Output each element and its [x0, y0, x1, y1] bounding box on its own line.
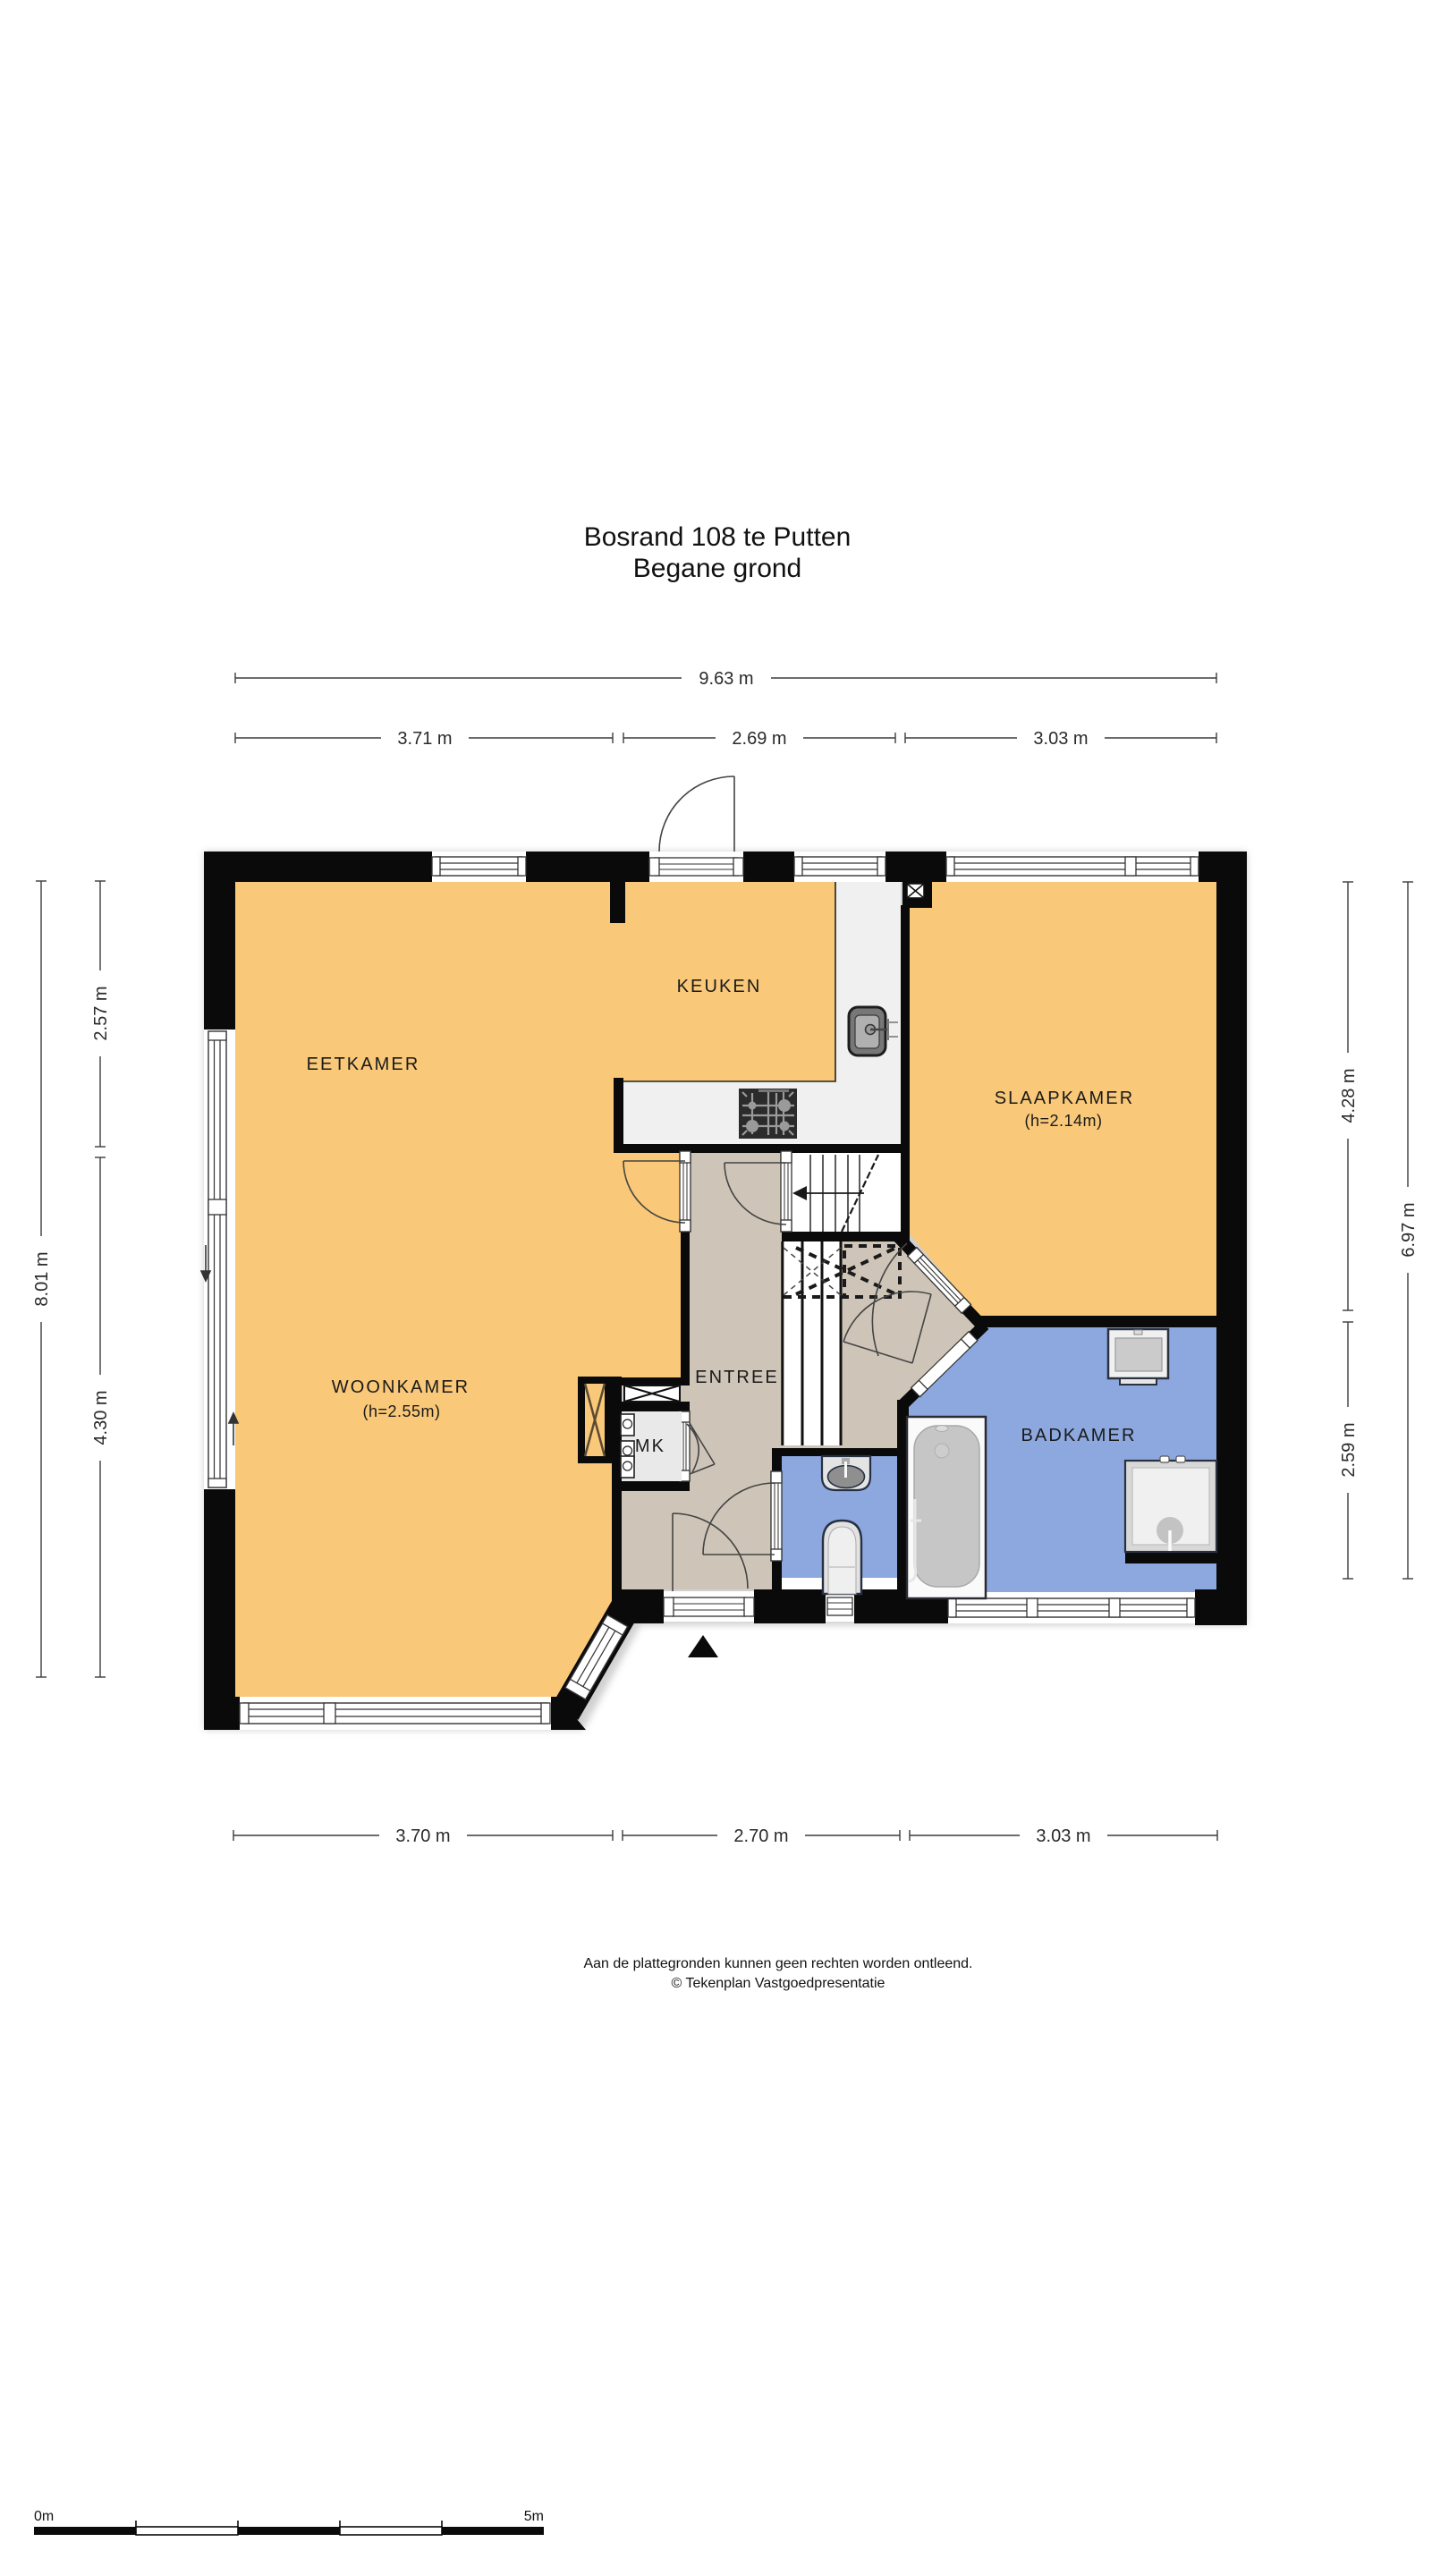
svg-text:MK: MK — [635, 1436, 665, 1456]
svg-text:6.97 m: 6.97 m — [1399, 1202, 1419, 1257]
svg-text:Aan de plattegronden kunnen ge: Aan de plattegronden kunnen geen rechten… — [583, 1956, 972, 1971]
svg-text:3.03 m: 3.03 m — [1033, 729, 1088, 749]
svg-text:2.69 m: 2.69 m — [732, 729, 786, 749]
svg-text:4.30 m: 4.30 m — [91, 1390, 111, 1445]
svg-text:Begane grond: Begane grond — [633, 554, 802, 583]
svg-text:0m: 0m — [34, 2509, 54, 2524]
svg-text:Bosrand 108 te Putten: Bosrand 108 te Putten — [584, 522, 852, 552]
svg-text:2.59 m: 2.59 m — [1339, 1422, 1359, 1477]
svg-text:4.28 m: 4.28 m — [1339, 1068, 1359, 1123]
svg-text:(h=2.14m): (h=2.14m) — [1024, 1112, 1102, 1130]
svg-text:EETKAMER: EETKAMER — [307, 1055, 420, 1074]
svg-text:(h=2.55m): (h=2.55m) — [362, 1402, 440, 1420]
svg-text:ENTREE: ENTREE — [695, 1368, 779, 1387]
svg-text:WOONKAMER: WOONKAMER — [332, 1377, 470, 1397]
svg-text:5m: 5m — [524, 2509, 544, 2524]
svg-text:KEUKEN: KEUKEN — [677, 977, 762, 996]
svg-text:3.70 m: 3.70 m — [395, 1826, 450, 1846]
svg-text:2.70 m: 2.70 m — [733, 1826, 788, 1846]
svg-text:© Tekenplan Vastgoedpresentati: © Tekenplan Vastgoedpresentatie — [672, 1976, 885, 1991]
svg-text:9.63 m: 9.63 m — [699, 669, 753, 689]
svg-text:3.71 m: 3.71 m — [397, 729, 452, 749]
svg-text:8.01 m: 8.01 m — [32, 1251, 52, 1306]
svg-text:3.03 m: 3.03 m — [1036, 1826, 1090, 1846]
svg-text:SLAAPKAMER: SLAAPKAMER — [995, 1089, 1135, 1108]
svg-text:BADKAMER: BADKAMER — [1021, 1426, 1136, 1445]
svg-text:2.57 m: 2.57 m — [91, 986, 111, 1040]
